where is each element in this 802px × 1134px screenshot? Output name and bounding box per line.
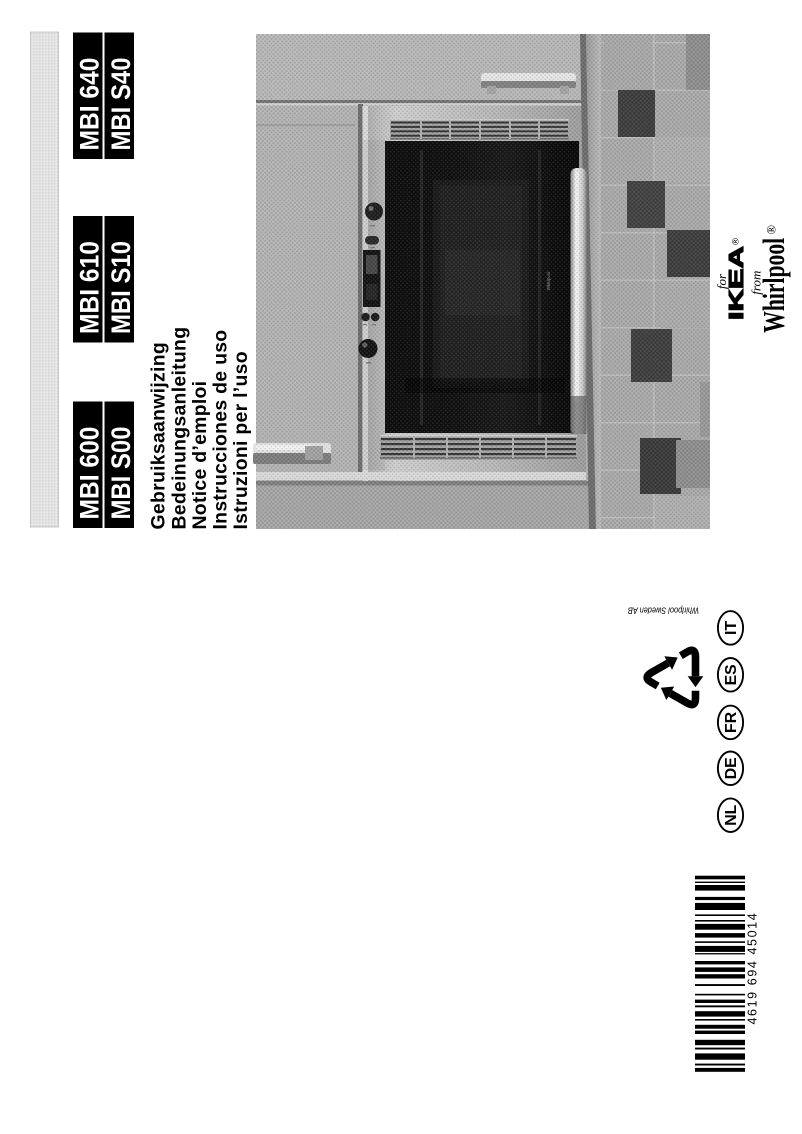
svg-text:IKEA: IKEA [726,246,748,320]
svg-text:ES: ES [723,664,740,685]
svg-text:MBI S00: MBI S00 [106,427,136,520]
svg-text:MBI S40: MBI S40 [106,58,136,151]
svg-text:MBI 610: MBI 610 [74,241,104,334]
svg-text:4619 694 45014: 4619 694 45014 [746,912,760,1025]
svg-text:Istruzioni per l’uso: Istruzioni per l’uso [230,351,252,529]
svg-text:MBI 640: MBI 640 [74,58,104,151]
svg-text:Notice d’emploi: Notice d’emploi [189,381,211,530]
svg-text:®: ® [731,238,742,245]
svg-text:MBI S10: MBI S10 [106,241,136,334]
svg-text:Gebruiksaanwijzing: Gebruiksaanwijzing [148,342,170,530]
svg-text:FR: FR [723,711,740,733]
svg-text:Instrucciones de uso: Instrucciones de uso [210,330,232,530]
svg-text:®: ® [765,225,779,235]
svg-text:Whirlpool Sweden AB: Whirlpool Sweden AB [628,606,699,616]
svg-text:MBI 600: MBI 600 [74,427,104,520]
svg-text:NL: NL [723,804,740,825]
svg-text:IT: IT [723,621,740,635]
svg-text:Bedeinungsanleitung: Bedeinungsanleitung [168,327,190,530]
svg-text:DE: DE [723,757,740,779]
svg-text:Whirlpool: Whirlpool [756,238,791,333]
